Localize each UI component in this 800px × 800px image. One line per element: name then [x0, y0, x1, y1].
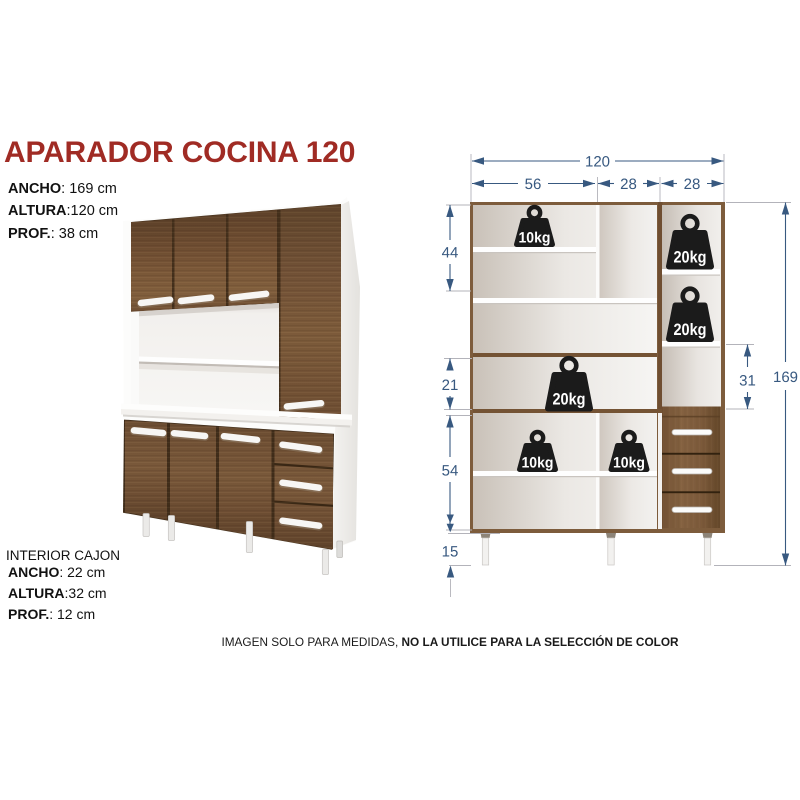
svg-text:120: 120 [585, 154, 610, 171]
svg-text:28: 28 [684, 176, 701, 193]
svg-text:10kg: 10kg [613, 455, 645, 472]
svg-text:10kg: 10kg [522, 455, 554, 472]
svg-text:31: 31 [739, 373, 756, 390]
svg-text:21: 21 [442, 377, 459, 394]
svg-text:10kg: 10kg [519, 230, 551, 247]
svg-text:20kg: 20kg [553, 391, 586, 409]
svg-text:28: 28 [620, 176, 637, 193]
svg-text:20kg: 20kg [674, 321, 707, 339]
svg-text:20kg: 20kg [674, 249, 707, 267]
svg-text:15: 15 [442, 544, 459, 561]
svg-text:169: 169 [773, 369, 798, 386]
svg-text:44: 44 [442, 245, 459, 262]
svg-text:54: 54 [442, 463, 459, 480]
svg-text:56: 56 [525, 176, 542, 193]
